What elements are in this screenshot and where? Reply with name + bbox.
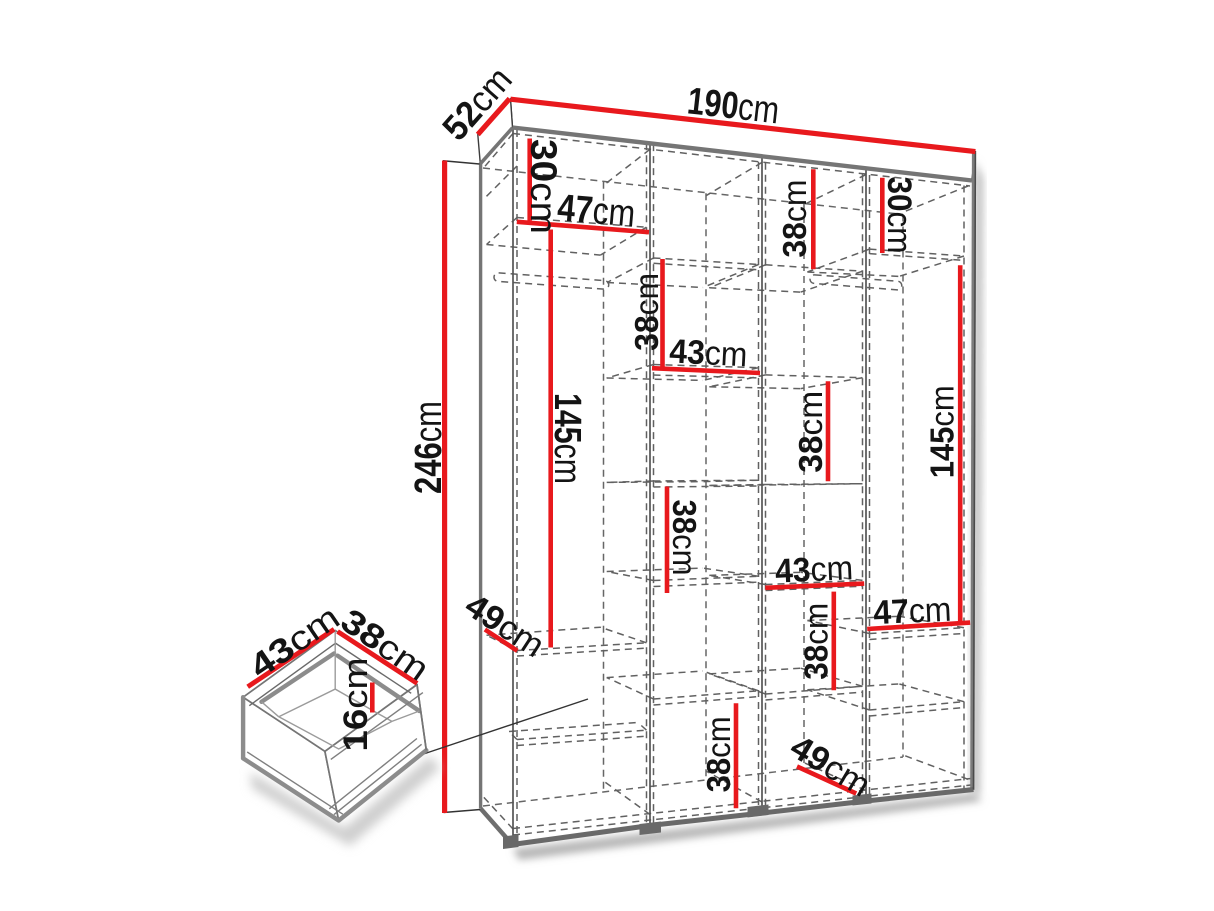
svg-text:16cm: 16cm xyxy=(337,658,375,752)
svg-text:38cm: 38cm xyxy=(628,273,665,351)
svg-text:246cm: 246cm xyxy=(408,401,450,494)
svg-text:38cm: 38cm xyxy=(797,603,834,680)
svg-text:38cm: 38cm xyxy=(792,391,829,473)
svg-text:47cm: 47cm xyxy=(873,591,953,632)
svg-text:145cm: 145cm xyxy=(546,393,588,484)
svg-text:43cm: 43cm xyxy=(668,332,748,374)
svg-text:38cm: 38cm xyxy=(776,180,813,258)
svg-text:30cm: 30cm xyxy=(880,177,918,254)
svg-text:43cm: 43cm xyxy=(774,549,854,590)
svg-text:145cm: 145cm xyxy=(924,385,961,478)
svg-text:38cm: 38cm xyxy=(700,716,737,792)
svg-text:38cm: 38cm xyxy=(666,500,703,576)
svg-text:47cm: 47cm xyxy=(556,187,637,236)
